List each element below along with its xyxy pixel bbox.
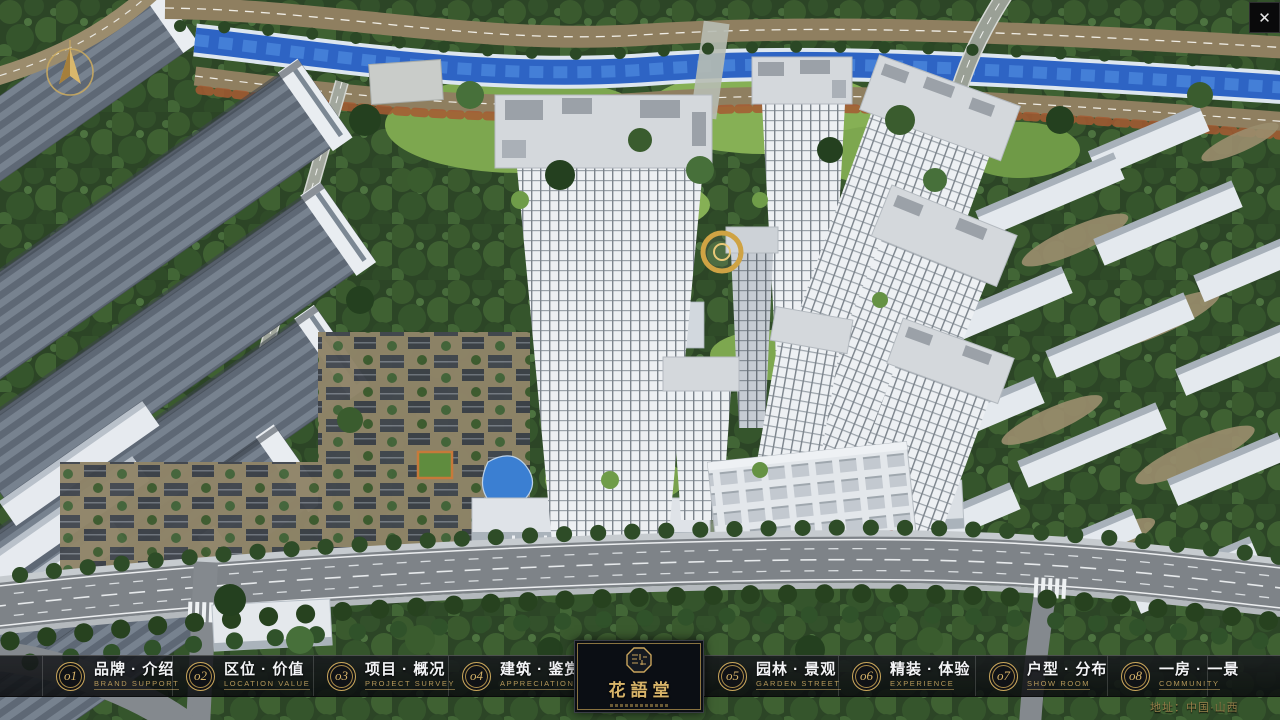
project-logo-name: 花語堂 <box>604 676 675 701</box>
nav-item-brand[interactable]: o1 品牌 · 介绍 BRAND SUPPORT <box>42 656 172 696</box>
nav-number-badge: o7 <box>989 662 1018 691</box>
masterplan-aerial-render <box>0 0 1280 720</box>
gold-ring-feature <box>703 233 741 271</box>
river-bridge <box>369 60 444 105</box>
compass-icon <box>40 38 100 105</box>
seal-emblem-icon <box>626 647 652 673</box>
nav-number-badge: o6 <box>852 662 881 691</box>
nav-label-zh: 精装 · 体验 <box>890 662 970 677</box>
nav-label-en: SHOW ROOM <box>1027 680 1090 690</box>
nav-number-badge: o5 <box>718 662 747 691</box>
nav-item-architecture[interactable]: o4 建筑 · 鉴赏 APPRECIATION <box>448 656 574 696</box>
nav-item-floorplans[interactable]: o7 户型 · 分布 SHOW ROOM <box>975 656 1107 696</box>
nav-item-interior[interactable]: o6 精装 · 体验 EXPERIENCE <box>838 656 975 696</box>
nav-label-en: COMMUNITY <box>1159 680 1220 690</box>
project-logo-panel[interactable]: 花語堂 <box>574 640 704 713</box>
nav-label-zh: 品牌 · 介绍 <box>94 662 174 677</box>
nav-number-badge: o2 <box>186 662 215 691</box>
nav-label-zh: 区位 · 价值 <box>224 662 304 677</box>
nav-label-en: GARDEN STREET <box>756 680 841 690</box>
nav-label-zh: 一房 · 一景 <box>1159 662 1239 677</box>
nav-number-badge: o3 <box>327 662 356 691</box>
nav-label-en: APPRECIATION <box>500 680 575 690</box>
nav-label-en: LOCATION VALUE <box>224 680 310 690</box>
nav-number-badge: o8 <box>1121 662 1150 691</box>
nav-number-badge: o1 <box>56 662 85 691</box>
nav-item-project[interactable]: o3 项目 · 概况 PROJECT SURVEY <box>313 656 448 696</box>
nav-item-views[interactable]: o8 一房 · 一景 COMMUNITY <box>1107 656 1208 696</box>
nav-label-zh: 项目 · 概况 <box>365 662 445 677</box>
nav-number-badge: o4 <box>462 662 491 691</box>
app-window: ✕ o1 品牌 · 介绍 BRAND SUPPORT o2 区位 · 价值 LO… <box>0 0 1280 720</box>
nav-item-garden[interactable]: o5 园林 · 景观 GARDEN STREET <box>704 656 838 696</box>
nav-item-location[interactable]: o2 区位 · 价值 LOCATION VALUE <box>172 656 313 696</box>
nav-label-zh: 园林 · 景观 <box>756 662 836 677</box>
nav-label-zh: 户型 · 分布 <box>1027 662 1107 677</box>
nav-label-en: BRAND SUPPORT <box>94 680 179 690</box>
nav-label-en: EXPERIENCE <box>890 680 954 690</box>
nav-label-zh: 建筑 · 鉴赏 <box>500 662 580 677</box>
nav-label-en: PROJECT SURVEY <box>365 680 455 690</box>
project-address: 地址：中国·山西 <box>1150 699 1239 715</box>
close-button[interactable]: ✕ <box>1249 2 1280 33</box>
logo-subtext-illegible <box>610 704 668 707</box>
